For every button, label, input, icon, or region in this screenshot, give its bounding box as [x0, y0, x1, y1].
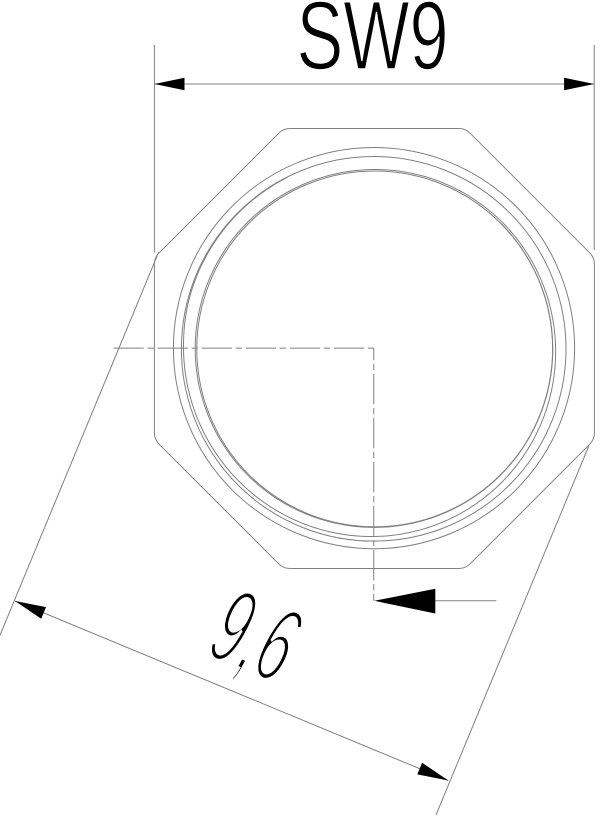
- svg-text:SW9: SW9: [297, 0, 449, 90]
